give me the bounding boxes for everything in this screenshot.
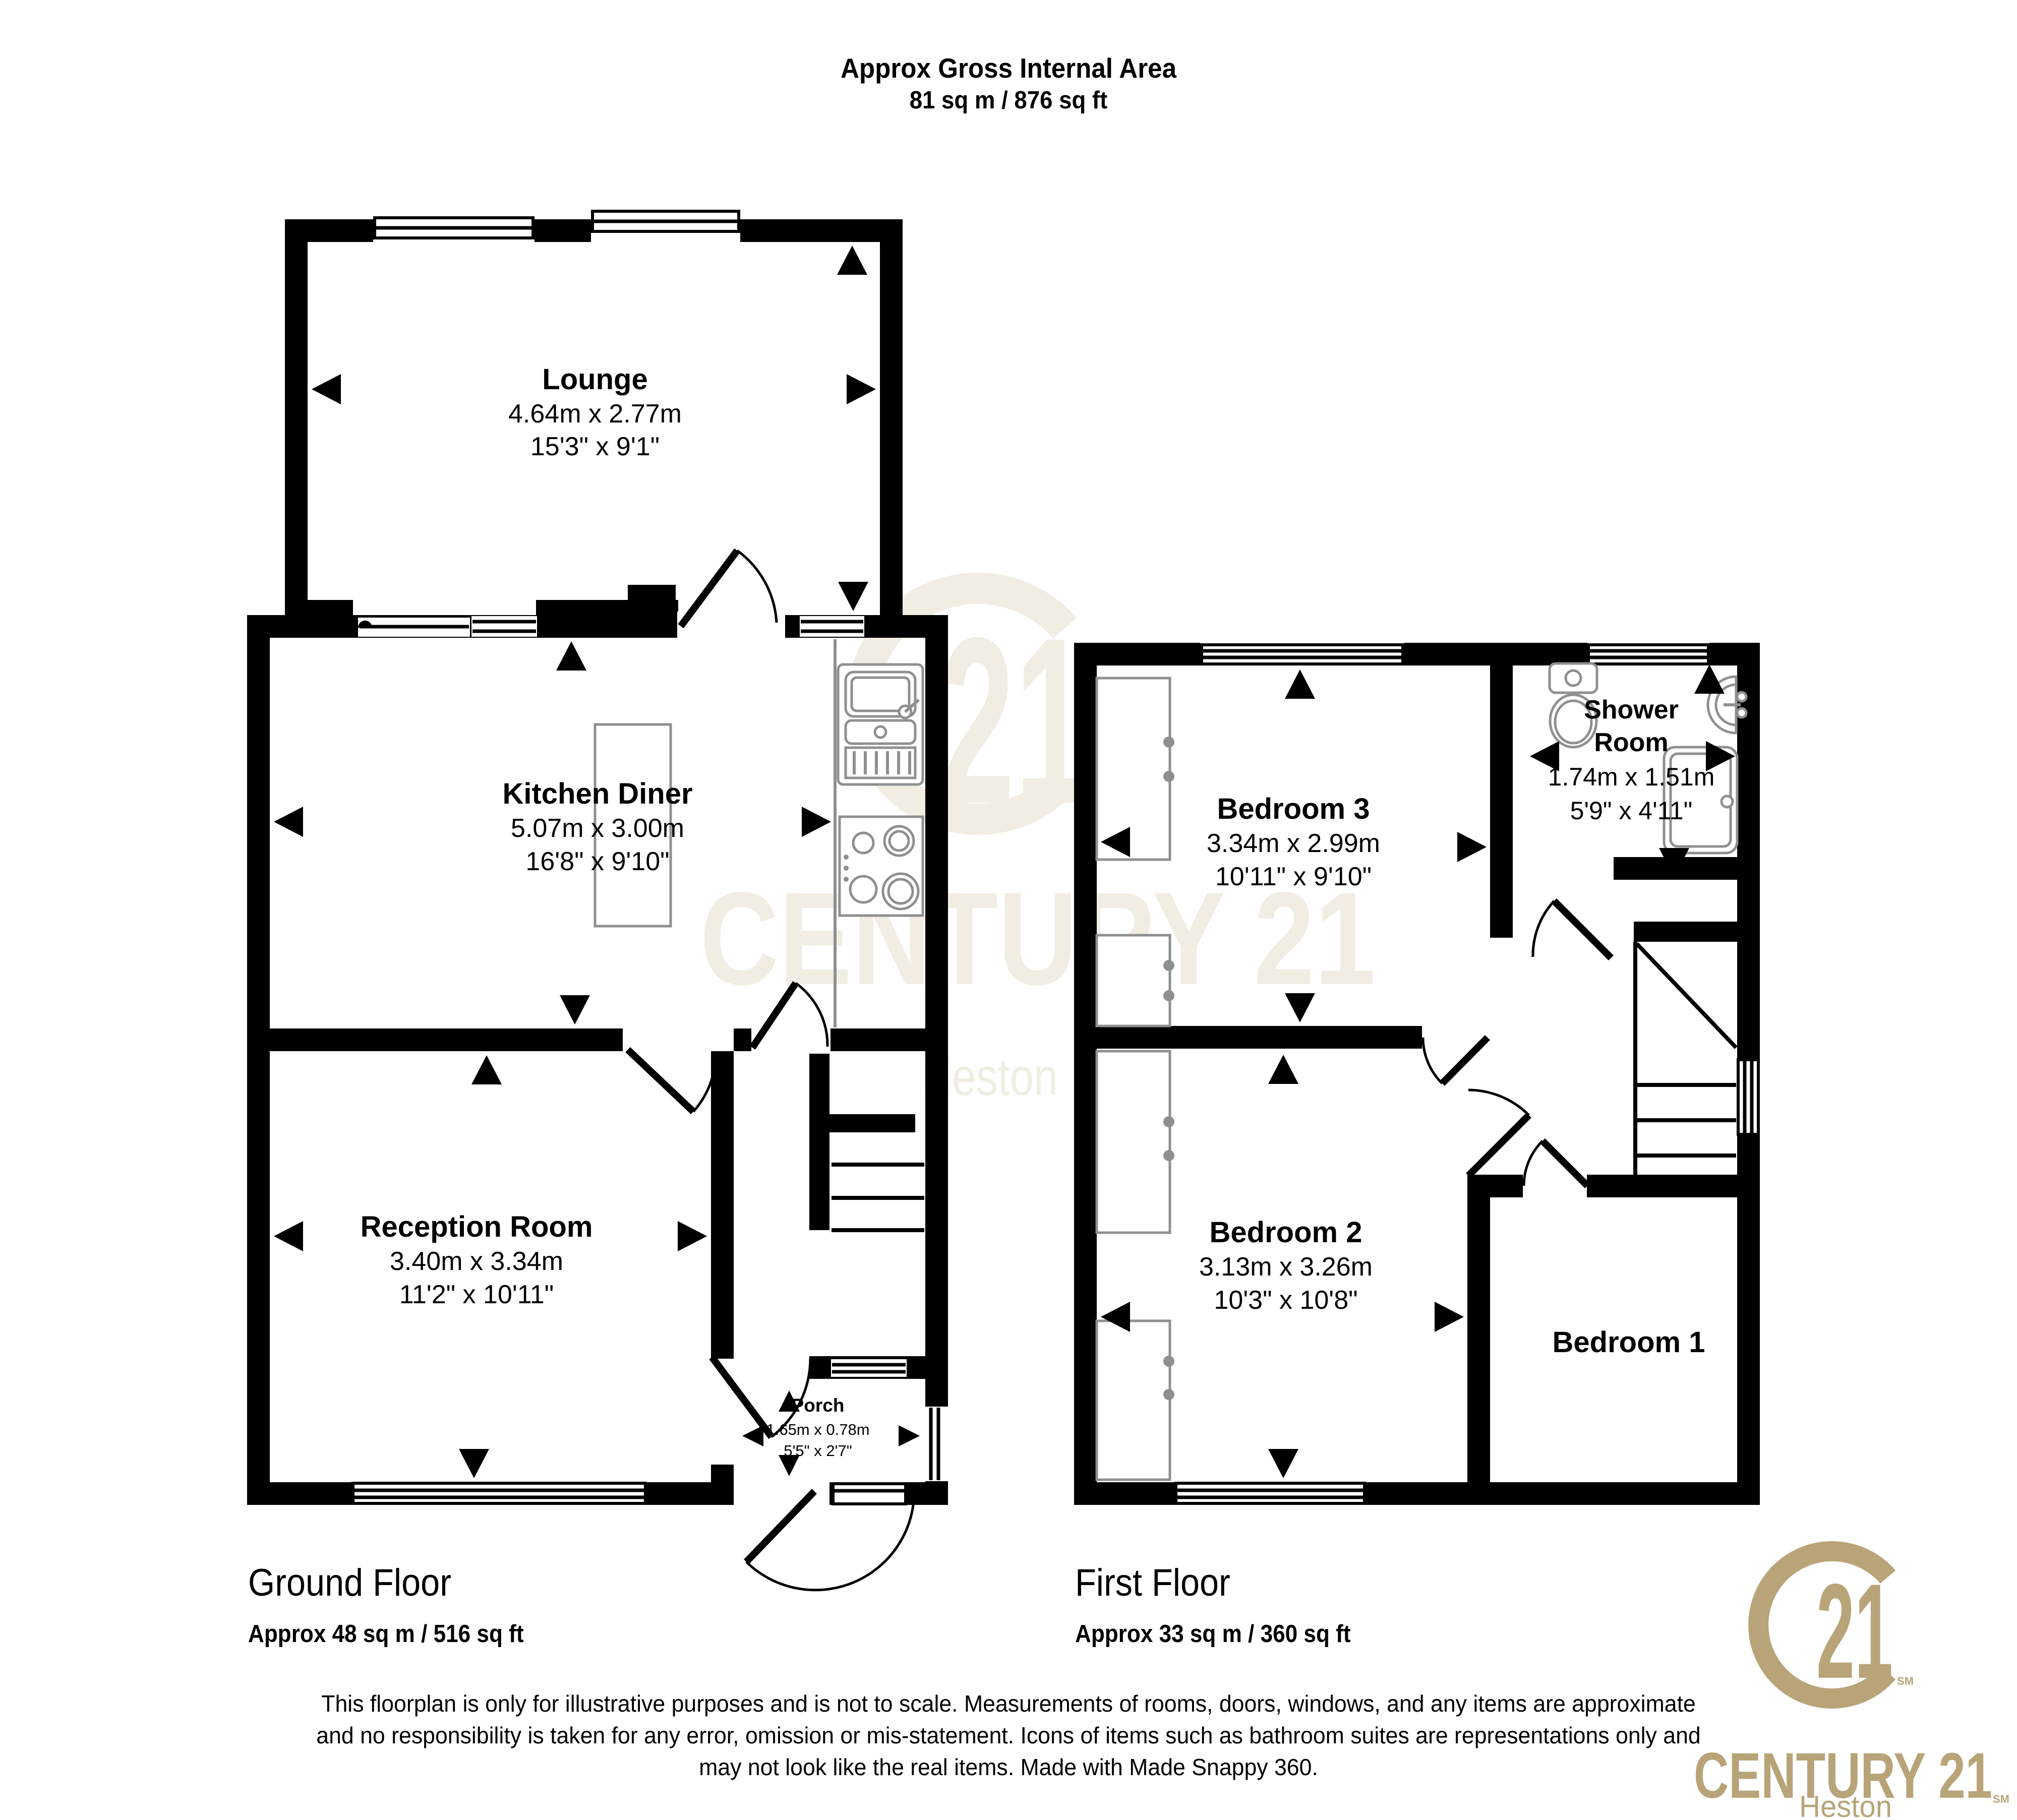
- floorplan-canvas: 21 SM CENTURY 21 Heston: [0, 0, 2017, 1820]
- first-floor-doors: [1423, 901, 1611, 1186]
- disclaimer-line: may not look like the real items. Made w…: [30, 1751, 1987, 1783]
- reception-name-label: Reception Room: [361, 1210, 593, 1243]
- stairs-first-icon: [1635, 942, 1736, 1175]
- bedroom2-metric-label: 3.13m x 3.26m: [1199, 1252, 1373, 1282]
- shower-room-name-label2: Room: [1594, 728, 1668, 757]
- logo-sm-icon: SM: [1897, 1675, 1914, 1687]
- ground-floor-label: Ground Floor: [248, 1561, 524, 1605]
- gross-area-title: Approx Gross Internal Area: [71, 53, 1946, 83]
- first-floor-caption: First Floor Approx 33 sq m / 360 sq ft: [1075, 1561, 1351, 1648]
- kitchen-metric-label: 5.07m x 3.00m: [511, 814, 684, 843]
- ground-floor-caption: Ground Floor Approx 48 sq m / 516 sq ft: [248, 1561, 524, 1648]
- disclaimer-line: This floorplan is only for illustrative …: [30, 1688, 1987, 1720]
- logo-21: 21: [1816, 1555, 1893, 1707]
- first-floor-plan: Bedroom 3 3.34m x 2.99m 10'11" x 9'10" S…: [1074, 640, 1762, 1507]
- first-floor-label: First Floor: [1075, 1561, 1351, 1605]
- stairs-ground-icon: [832, 1165, 924, 1230]
- lounge-name-label: Lounge: [542, 363, 647, 396]
- bedroom2-imperial-label: 10'3" x 10'8": [1214, 1286, 1357, 1315]
- porch-name-label: Porch: [792, 1395, 845, 1416]
- ground-floor-area: Approx 48 sq m / 516 sq ft: [248, 1620, 524, 1648]
- sink-icon: [838, 664, 923, 784]
- lounge-imperial-label: 15'3" x 9'1": [530, 432, 660, 461]
- reception-imperial-label: 11'2" x 10'11": [399, 1280, 554, 1309]
- watermark-21: 21: [940, 588, 1089, 853]
- ground-floor-plan: Lounge 4.64m x 2.77m 15'3" x 9'1" Kitche…: [247, 209, 951, 1590]
- lounge-metric-label: 4.64m x 2.77m: [508, 399, 682, 429]
- bedroom3-metric-label: 3.34m x 2.99m: [1207, 829, 1380, 858]
- logo-office-name: Heston: [1799, 1790, 1892, 1820]
- disclaimer-line: and no responsibility is taken for any e…: [30, 1720, 1987, 1751]
- kitchen-imperial-label: 16'8" x 9'10": [525, 847, 669, 876]
- bedroom1-name-label: Bedroom 1: [1553, 1326, 1705, 1359]
- wardrobe-icon: [1097, 1051, 1170, 1233]
- porch-metric-label: 1.65m x 0.78m: [766, 1421, 869, 1438]
- hob-icon: [840, 817, 923, 916]
- first-floor-area: Approx 33 sq m / 360 sq ft: [1075, 1620, 1351, 1648]
- shower-room-imperial-label: 5'9" x 4'11": [1570, 797, 1693, 825]
- disclaimer: This floorplan is only for illustrative …: [30, 1688, 1987, 1783]
- wardrobe-icon: [1097, 678, 1170, 860]
- reception-metric-label: 3.40m x 3.34m: [390, 1247, 563, 1276]
- wardrobes: [1097, 678, 1174, 1480]
- porch-imperial-label: 5'5" x 2'7": [784, 1442, 852, 1460]
- floorplan-svg: 21 SM CENTURY 21 Heston: [0, 0, 2017, 1820]
- bedroom2-name-label: Bedroom 2: [1210, 1216, 1362, 1249]
- gross-area-value: 81 sq m / 876 sq ft: [71, 86, 1946, 114]
- logo-sm2-icon: SM: [1993, 1793, 2009, 1805]
- bedroom3-imperial-label: 10'11" x 9'10": [1215, 862, 1372, 891]
- wardrobe-icon: [1097, 1321, 1170, 1480]
- wardrobe-icon: [1097, 935, 1170, 1026]
- header: Approx Gross Internal Area 81 sq m / 876…: [71, 53, 1946, 114]
- shower-room-metric-label: 1.74m x 1.51m: [1548, 763, 1715, 791]
- shower-room-name-label1: Shower: [1584, 695, 1679, 724]
- kitchen-name-label: Kitchen Diner: [502, 777, 692, 810]
- bedroom3-name-label: Bedroom 3: [1217, 793, 1370, 825]
